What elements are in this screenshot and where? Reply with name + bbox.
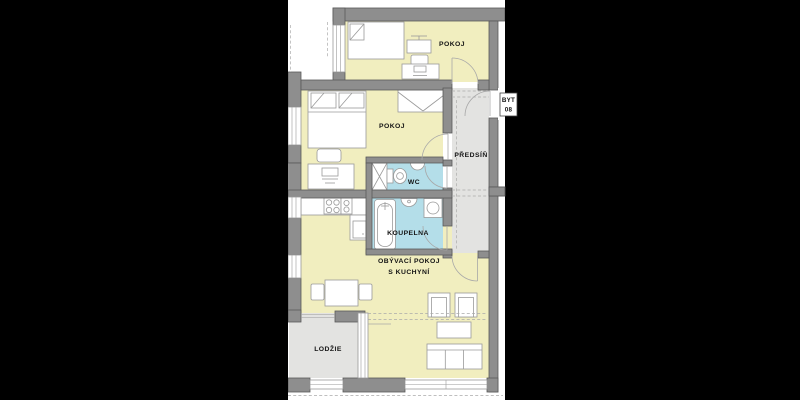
window xyxy=(288,197,301,218)
wall-room-divider xyxy=(301,80,452,90)
bathtub-icon xyxy=(375,200,396,250)
window xyxy=(288,107,301,145)
floor-plan-svg: BYT 08 POKOJ POKOJ PŘEDSÍŇ WC KOUPELNA O… xyxy=(0,0,800,400)
label-koupelna: KOUPELNA xyxy=(387,230,429,237)
label-lodzie: LODŽIE xyxy=(314,344,342,353)
chair-icon xyxy=(317,149,341,162)
shaft-icon xyxy=(372,163,387,190)
unit-label: BYT 08 xyxy=(500,93,517,116)
room-hallway xyxy=(452,88,489,253)
chair-icon xyxy=(411,55,428,65)
washing-machine-icon xyxy=(424,199,442,218)
wall-bottom xyxy=(288,378,310,392)
wall-right-lower xyxy=(489,118,498,392)
letterbox-left xyxy=(0,0,288,400)
kitchen-sink-icon xyxy=(341,198,352,214)
loggia-railing xyxy=(310,380,343,389)
sofa-icon xyxy=(427,344,482,369)
label-pokoj-middle: POKOJ xyxy=(379,123,405,130)
wardrobe-icon xyxy=(398,90,448,112)
toilet-icon xyxy=(387,169,407,184)
label-wc: WC xyxy=(408,179,420,186)
wall-top xyxy=(333,8,505,21)
desk-icon xyxy=(402,64,439,79)
unit-label-line1: BYT xyxy=(502,97,515,104)
double-bed-icon xyxy=(308,91,366,148)
label-obyvaci-line2: S KUCHYNÍ xyxy=(388,267,430,276)
oven-icon xyxy=(353,221,366,238)
bed-icon xyxy=(348,22,404,59)
window-bottom xyxy=(405,380,487,389)
letterbox-right xyxy=(505,0,800,400)
desk-icon xyxy=(308,164,354,189)
window xyxy=(288,255,301,278)
stove-icon xyxy=(324,198,341,214)
label-pokoj-top: POKOJ xyxy=(439,41,465,48)
unit-label-line2: 08 xyxy=(505,107,513,114)
label-obyvaci-line1: OBÝVACÍ POKOJ xyxy=(378,256,440,265)
wall-right-upper xyxy=(489,21,498,90)
floor-plan-screenshot: BYT 08 POKOJ POKOJ PŘEDSÍŇ WC KOUPELNA O… xyxy=(0,0,800,400)
window xyxy=(333,25,345,72)
coffee-table-icon xyxy=(437,322,471,338)
label-predsin: PŘEDSÍŇ xyxy=(454,150,487,159)
